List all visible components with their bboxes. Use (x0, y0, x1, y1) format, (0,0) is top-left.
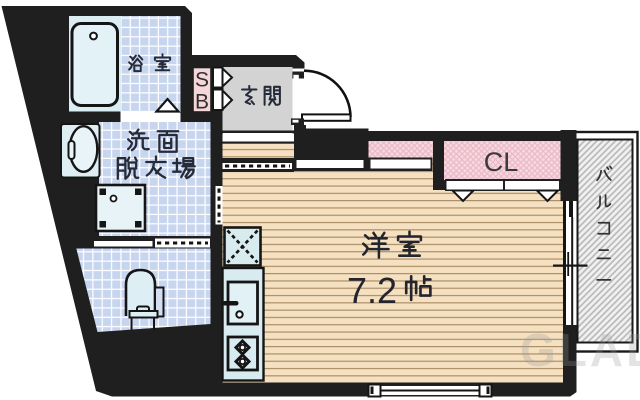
svg-text:S: S (195, 69, 209, 92)
svg-text:B: B (195, 91, 209, 114)
svg-text:CL: CL (484, 147, 519, 177)
svg-text:GLAD: GLAD (520, 324, 640, 376)
svg-text:7.2: 7.2 (347, 270, 397, 311)
